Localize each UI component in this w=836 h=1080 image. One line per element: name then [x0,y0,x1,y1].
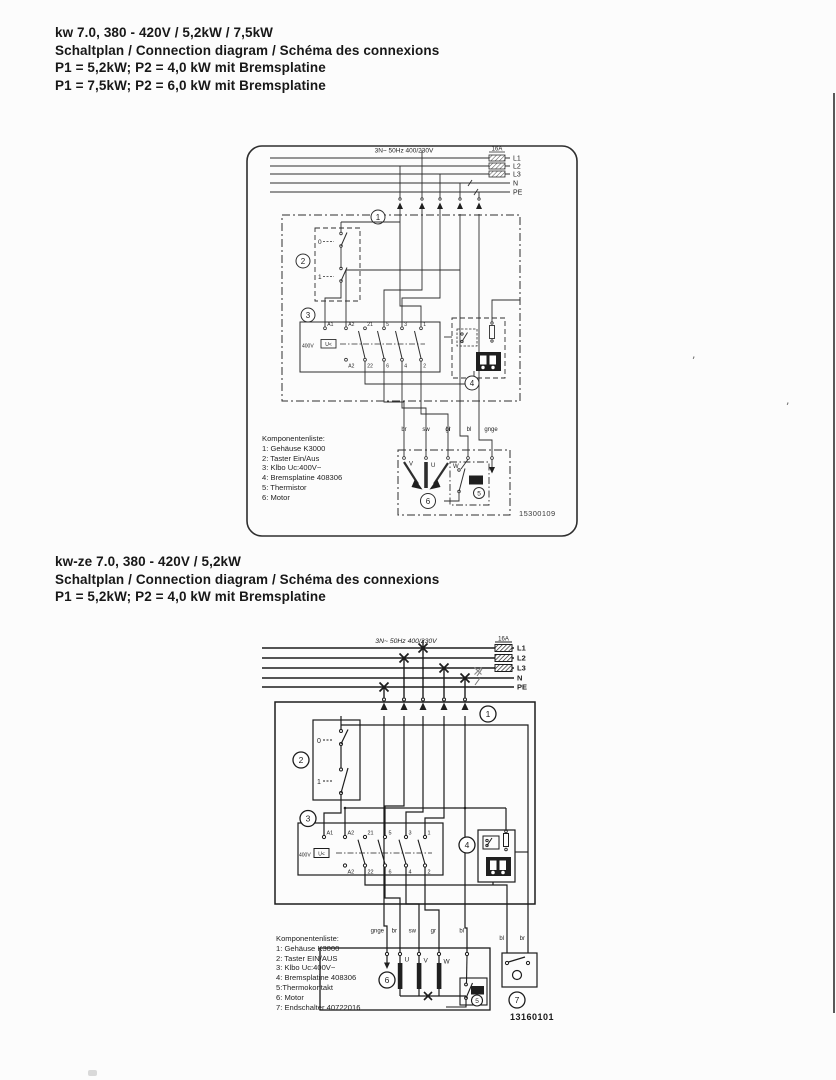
coil-voltage-label: 400V [302,344,314,350]
switch-off-label: 0 [318,239,322,246]
svg-text:2: 2 [301,257,306,266]
svg-text:4: 4 [465,840,470,850]
line-label-l1: L1 [513,156,521,163]
plug-connector [397,166,403,214]
wire-label-sw: sw [422,427,430,433]
terminal-4: 4 [409,870,412,876]
component-list-item: 5:Thermokontakt [276,983,360,993]
line-label-pe: PE [517,683,527,692]
line-label-pe: PE [513,190,523,197]
section1-power-spec-1: P1 = 5,2kW; P2 = 4,0 kW mit Bremsplatine [55,59,439,77]
fuse-l3 [489,171,505,177]
wire-label-sw: sw [409,929,417,935]
line-label-l2: L2 [513,164,521,171]
document-page: kw 7.0, 380 - 420V / 5,2kW / 7,5kW Schal… [0,0,836,1080]
wire-label-bl: bl [467,427,472,433]
wire-label-gnge: gnge [371,929,385,935]
motor-winding [417,963,422,989]
scan-smudge [88,1070,97,1076]
svg-text:5: 5 [475,998,479,1005]
terminal-a1: A1 [327,322,333,328]
callout-6: 6 [421,494,436,509]
drawing-number-1: 15300109 [519,509,556,518]
svg-text:2: 2 [299,755,304,765]
contactor-box: 3 A1 A2 21 5 3 1 A2 22 6 4 2 [298,811,443,876]
terminal-3: 3 [409,831,412,837]
thermo-badge-label: 150 [472,478,481,484]
line-label-l3: L3 [513,172,521,179]
terminal-5: 5 [389,831,392,837]
coil-voltage-label: 400V [299,853,311,859]
resistor [504,834,509,847]
supply-spec-label: 3N~ 50Hz 400/230V [375,638,438,645]
scan-artifact-mark: ’ [692,356,695,367]
wire-label-gr: gr [431,929,436,935]
motor-box: br sw bl gr bl gnge V U W 6 [398,427,510,515]
motor-terminal-v: V [424,958,429,965]
fuse-rating-label: 16A [492,147,503,153]
svg-text:5: 5 [477,491,481,498]
terminal-21: 21 [367,322,373,328]
component-list-item: 3: Klbo Uc:400V~ [276,963,360,973]
terminal-2: 2 [423,364,426,370]
motor-terminal-u: U [431,463,435,469]
resistor [490,326,495,339]
terminal-a2: A2 [348,831,355,837]
terminal-1: 1 [423,322,426,328]
section2-power-spec: P1 = 5,2kW; P2 = 4,0 kW mit Bremsplatine [55,588,439,606]
terminal-a1: A1 [327,831,334,837]
brake-board-box: 4 [444,318,505,390]
line-label-n: N [517,674,522,683]
component-list-item: 5: Thermistor [262,483,342,493]
wire-label-br: br [401,427,406,433]
callout-7: 7 [509,992,525,1008]
plug-connector [441,668,448,710]
section2-subtitle: Schaltplan / Connection diagram / Schéma… [55,571,439,589]
component-list-item: 3: Klbo Uc:400V~ [262,463,342,473]
line-label-n: N [513,181,518,188]
callout-5: 5 [474,488,485,499]
brake-board-box: 4 [459,830,528,882]
diagram1-supply-lines: 3N~ 50Hz 400/230V 16A L1 L2 L3 N PE [270,147,523,197]
terminal-block [486,857,511,876]
plug-connector [419,150,425,214]
svg-text:7: 7 [515,995,520,1005]
wire-label-gnge: gnge [484,427,498,433]
motor-terminal-w: W [444,959,451,966]
svg-text:3: 3 [306,311,311,320]
wire-label-br: br [520,936,525,942]
svg-text:6: 6 [385,975,390,985]
fuse-l2 [489,163,505,169]
terminal-3: 3 [404,322,407,328]
fuse-rating-label: 16A [498,637,509,643]
callout-2: 2 [296,254,310,268]
svg-text:1: 1 [376,213,381,222]
motor-terminal-u: U [405,957,410,964]
terminal-4: 4 [404,364,407,370]
component-list-item: 1: Gehäuse K3000 [276,944,360,954]
component-list-item: 4: Bremsplatine 408306 [276,973,360,983]
motor-terminal-v: V [409,462,413,468]
fuse-l1 [495,645,512,652]
diagram2-plug-connectors [380,640,482,710]
component-list-item: 4: Bremsplatine 408306 [262,473,342,483]
motor-winding [437,963,442,989]
callout-3: 3 [301,308,315,322]
callout-5: 5 [472,995,483,1006]
contactor-box: 3 A1 A2 21 5 3 1 A2 22 6 4 2 [300,308,440,372]
switch-off-label: 0 [317,738,321,745]
terminal-2: 2 [428,870,431,876]
thermo-badge-label: 150 [473,989,481,995]
component-list-1: Komponentenliste: 1: Gehäuse K3000 2: Ta… [262,434,342,503]
component-list-item: 7: Endschalter 40722016 [276,1003,360,1013]
component-list-2: Komponentenliste: 1: Gehäuse K3000 2: Ta… [276,934,360,1012]
section1-title: kw 7.0, 380 - 420V / 5,2kW / 7,5kW [55,24,439,42]
component-list-item: 1: Gehäuse K3000 [262,444,342,454]
line-label-l1: L1 [517,644,526,653]
terminal-21: 21 [368,831,374,837]
component-list-item: 2: Taster Ein/Aus [262,454,342,464]
diagram1-plug-connectors [397,150,482,214]
line-label-l3: L3 [517,664,526,673]
section1-power-spec-2: P1 = 7,5kW; P2 = 6,0 kW mit Bremsplatine [55,77,439,95]
terminal-22: 22 [367,364,373,370]
wire-label-gr: gr [445,427,450,433]
terminal-6: 6 [386,364,389,370]
plug-connector [462,678,469,710]
wire-label-bl: bl [499,936,504,942]
thermistor-box: 150 5 [444,462,489,505]
callout-3: 3 [300,811,316,827]
motor-winding [398,963,403,989]
line-label-l2: L2 [517,654,526,663]
diagram2-supply-lines: 3N~ 50Hz 400/230V 16A L1 L2 L3 N PE [262,637,527,692]
roller [513,971,522,980]
diagram1-wiring [341,214,520,457]
terminal-block [476,352,501,371]
terminal-a2b: A2 [348,870,355,876]
wire-label-br: br [392,929,397,935]
terminal-a2b: A2 [348,364,354,370]
component-list-title: Komponentenliste: [262,434,342,444]
fuse-l3 [495,665,512,672]
terminal-5: 5 [386,322,389,328]
callout-4: 4 [459,837,475,853]
scan-artifact-mark: ’ [786,402,789,413]
drawing-number-2: 13160101 [510,1012,554,1022]
section1-subtitle: Schaltplan / Connection diagram / Schéma… [55,42,439,60]
component-list-item: 6: Motor [276,993,360,1003]
undervoltage-label: U< [325,342,332,348]
callout-1: 1 [480,706,496,722]
switch-on-label: 1 [318,274,322,281]
section2-title: kw-ze 7.0, 380 - 420V / 5,2kW [55,553,439,571]
terminal-6: 6 [389,870,392,876]
terminal-1: 1 [428,831,431,837]
wire-label-bl: bl [459,929,464,935]
component-list-item: 6: Motor [262,493,342,503]
plug-connector [457,183,463,209]
svg-text:3: 3 [306,814,311,824]
svg-text:6: 6 [426,497,431,506]
callout-6: 6 [379,972,395,988]
undervoltage-label: U< [318,852,325,858]
terminal-a2: A2 [348,322,354,328]
supply-spec-label: 3N~ 50Hz 400/230V [375,148,434,155]
callout-2: 2 [293,752,309,768]
fuse-l1 [489,155,505,161]
earth-arrow [384,963,390,970]
svg-text:4: 4 [470,379,475,388]
plug-connector [437,174,443,214]
fuse-l2 [495,655,512,662]
scan-edge-line [833,93,835,1013]
switch-on-label: 1 [317,779,321,786]
terminal-22: 22 [368,870,374,876]
component-list-title: Komponentenliste: [276,934,360,944]
limit-switch-box: bl br 7 [499,936,537,1008]
component-list-item: 2: Taster EIN/AUS [276,954,360,964]
svg-text:1: 1 [486,709,491,719]
earth-arrow [489,467,495,474]
section1-heading: kw 7.0, 380 - 420V / 5,2kW / 7,5kW Schal… [55,24,439,94]
callout-4: 4 [465,376,479,390]
plug-connector [476,192,482,209]
section2-heading: kw-ze 7.0, 380 - 420V / 5,2kW Schaltplan… [55,553,439,606]
